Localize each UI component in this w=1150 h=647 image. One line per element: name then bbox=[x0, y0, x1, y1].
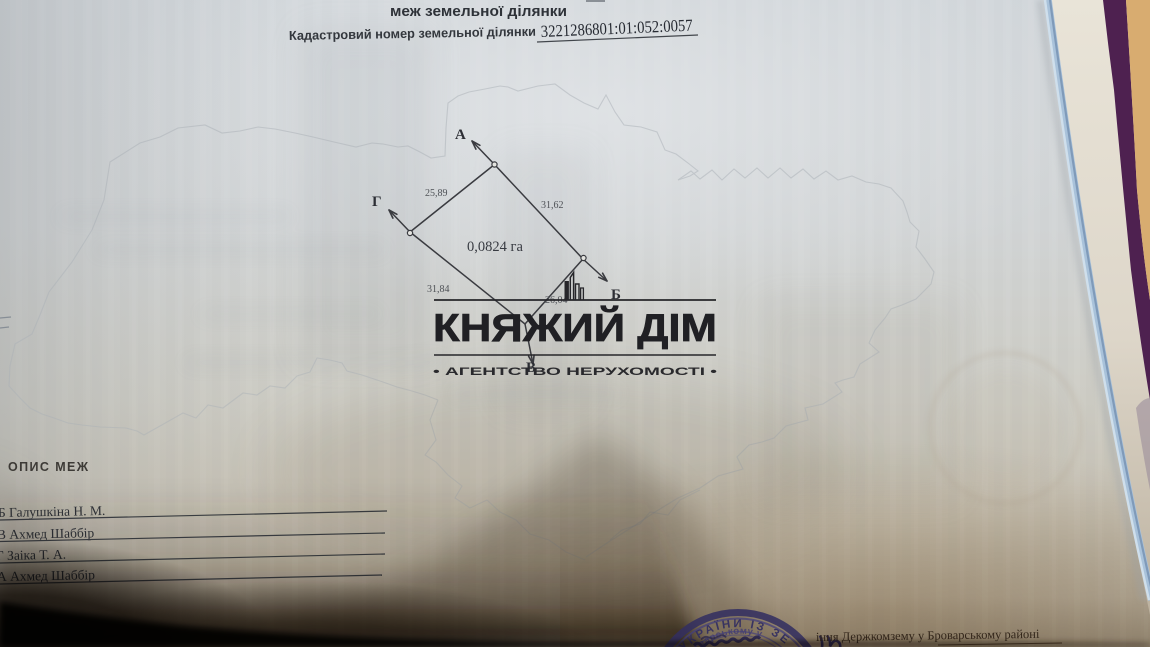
svg-text:Г: Г bbox=[372, 194, 382, 210]
svg-text:А: А bbox=[455, 127, 466, 143]
svg-text:КНЯЖИЙ ДІМ: КНЯЖИЙ ДІМ bbox=[433, 305, 717, 350]
svg-text:31,62: 31,62 bbox=[541, 200, 564, 211]
svg-text:0,0824 га: 0,0824 га bbox=[467, 239, 523, 255]
svg-text:25,89: 25,89 bbox=[425, 188, 448, 199]
svg-text:меж земельної ділянки: меж земельної ділянки bbox=[390, 4, 567, 20]
svg-text:ОПИС МЕЖ: ОПИС МЕЖ bbox=[8, 460, 89, 474]
svg-text:31,84: 31,84 bbox=[427, 284, 450, 295]
